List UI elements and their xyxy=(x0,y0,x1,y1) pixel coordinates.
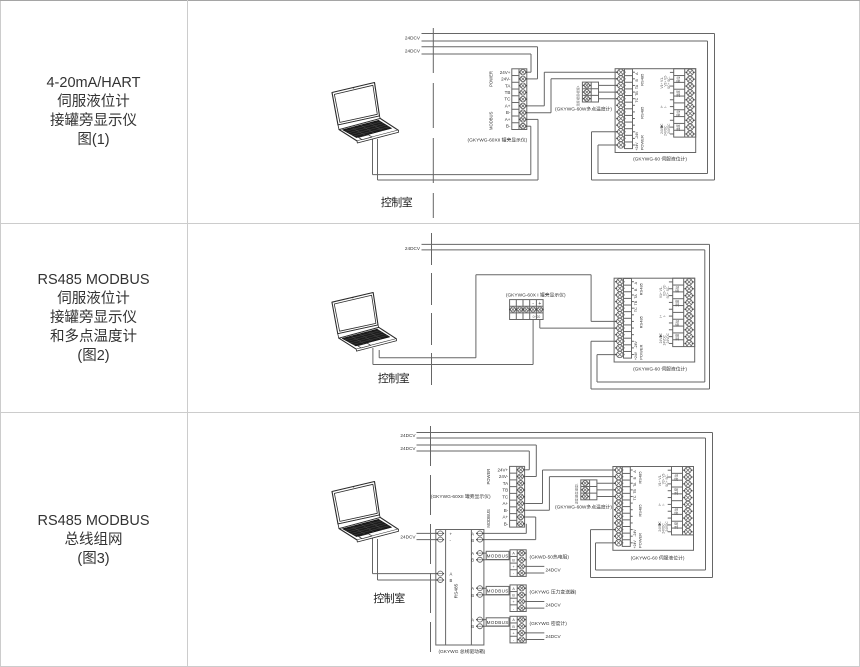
svg-text:+24V: +24V xyxy=(633,540,637,549)
svg-text:温度3: 温度3 xyxy=(575,98,580,106)
svg-text:TC: TC xyxy=(634,307,638,312)
svg-text:SC+ SC-: SC+ SC- xyxy=(665,474,669,487)
svg-text:(GKYWG-60W多点温度计): (GKYWG-60W多点温度计) xyxy=(555,106,612,113)
svg-text:B: B xyxy=(471,593,474,598)
svg-text:TA: TA xyxy=(503,481,508,486)
svg-text:SC+ SC-: SC+ SC- xyxy=(666,286,670,299)
svg-text:液位: 液位 xyxy=(675,319,680,327)
svg-text:温度: 温度 xyxy=(676,124,681,132)
svg-text:24VDC: 24VDC xyxy=(667,123,671,134)
svg-text:A: A xyxy=(471,586,474,591)
svg-text:A: A xyxy=(512,587,515,591)
svg-text:TC: TC xyxy=(504,97,511,102)
svg-text:TC: TC xyxy=(635,97,639,102)
svg-text:B-: B- xyxy=(506,110,511,115)
svg-text:24DCV: 24DCV xyxy=(400,535,416,540)
svg-text:A+: A+ xyxy=(503,501,509,506)
svg-text:液位: 液位 xyxy=(673,474,678,482)
svg-text:B-: B- xyxy=(504,508,509,513)
svg-text:0~20: 0~20 xyxy=(533,315,541,319)
svg-text:POWER: POWER xyxy=(488,71,493,87)
svg-text:A: A xyxy=(512,552,515,556)
svg-text:A: A xyxy=(450,572,453,577)
svg-text:MODBUS: MODBUS xyxy=(487,553,509,558)
svg-text:SC+ SC-: SC+ SC- xyxy=(667,76,671,89)
svg-text:24DCV: 24DCV xyxy=(400,433,416,438)
svg-text:A: A xyxy=(512,618,515,622)
svg-text:温度1: 温度1 xyxy=(573,483,578,491)
svg-text:温度: 温度 xyxy=(673,522,678,530)
svg-text:液位: 液位 xyxy=(675,285,680,293)
svg-text:温度3: 温度3 xyxy=(573,496,578,504)
svg-text:-: - xyxy=(513,572,515,576)
svg-text:温度: 温度 xyxy=(675,333,680,341)
svg-text:B: B xyxy=(512,625,515,629)
svg-text:TB: TB xyxy=(502,488,508,493)
svg-text:POWER: POWER xyxy=(637,533,642,548)
svg-text:24DCV: 24DCV xyxy=(405,36,421,41)
svg-text:I-: I- xyxy=(664,106,668,108)
svg-text:A: A xyxy=(633,470,637,473)
svg-text:B: B xyxy=(471,624,474,629)
svg-text:(GKYWG-60X I 罐旁显示仪): (GKYWG-60X I 罐旁显示仪) xyxy=(506,291,566,298)
svg-text:+: + xyxy=(513,632,515,636)
svg-text:控制室: 控制室 xyxy=(381,195,413,209)
svg-text:24DCV: 24DCV xyxy=(405,48,421,53)
svg-text:24VDC: 24VDC xyxy=(665,521,669,532)
svg-text:TC: TC xyxy=(502,494,509,499)
svg-text:B-: B- xyxy=(506,124,511,129)
svg-text:A: A xyxy=(471,551,474,556)
svg-text:A+: A+ xyxy=(503,515,509,520)
svg-text:RS485: RS485 xyxy=(639,282,644,295)
svg-text:B: B xyxy=(450,578,453,583)
svg-text:(GKYWG-60 伺服液位计): (GKYWG-60 伺服液位计) xyxy=(631,555,685,562)
svg-text:(GKYWG-60 伺服液位计): (GKYWG-60 伺服液位计) xyxy=(633,366,687,373)
svg-text:TC: TC xyxy=(633,495,637,500)
svg-text:I-: I- xyxy=(663,315,667,317)
svg-text:POWER: POWER xyxy=(639,345,644,360)
svg-text:B-: B- xyxy=(504,521,509,526)
svg-text:(GKYWG-60XII 罐旁显示仪): (GKYWG-60XII 罐旁显示仪) xyxy=(468,137,528,144)
svg-text:+: + xyxy=(513,565,515,569)
svg-text:B: B xyxy=(633,476,637,479)
svg-text:+: + xyxy=(450,531,453,536)
svg-text:B: B xyxy=(471,558,474,563)
svg-text:控制室: 控制室 xyxy=(378,371,410,385)
svg-text:B: B xyxy=(512,593,515,597)
svg-text:温度1: 温度1 xyxy=(575,85,580,93)
svg-text:RS485: RS485 xyxy=(637,471,642,484)
svg-text:24DCV: 24DCV xyxy=(546,603,562,608)
svg-text:TA: TA xyxy=(634,294,638,299)
svg-text:液位: 液位 xyxy=(676,76,681,84)
svg-text:I-: I- xyxy=(661,504,665,506)
svg-text:24V-: 24V- xyxy=(499,474,509,479)
svg-text:控制室: 控制室 xyxy=(373,591,405,605)
svg-text:(GKYWG 总线驱动箱): (GKYWG 总线驱动箱) xyxy=(438,648,485,655)
svg-text:+24V: +24V xyxy=(634,351,638,360)
svg-text:24DCV: 24DCV xyxy=(546,568,562,573)
svg-text:温度: 温度 xyxy=(676,90,681,98)
svg-text:-24V: -24V xyxy=(635,131,639,139)
svg-text:A: A xyxy=(471,531,474,536)
svg-text:24V+: 24V+ xyxy=(498,467,509,472)
svg-text:B: B xyxy=(471,538,474,543)
svg-text:MODBUS: MODBUS xyxy=(487,620,509,625)
svg-text:24V-: 24V- xyxy=(501,77,511,82)
svg-text:A: A xyxy=(634,281,638,284)
svg-text:温度: 温度 xyxy=(675,299,680,307)
svg-text:RS485: RS485 xyxy=(640,73,645,86)
svg-text:MODBUS: MODBUS xyxy=(487,588,509,593)
svg-text:+: + xyxy=(538,301,541,307)
svg-text:液位: 液位 xyxy=(673,508,678,516)
svg-text:24DCV: 24DCV xyxy=(400,446,416,451)
svg-text:A+: A+ xyxy=(505,103,511,108)
svg-text:-: - xyxy=(450,538,452,543)
svg-text:24DCV: 24DCV xyxy=(546,634,562,639)
svg-text:B: B xyxy=(635,79,639,82)
svg-text:+: + xyxy=(513,600,515,604)
svg-text:MODBUS: MODBUS xyxy=(486,509,491,528)
svg-text:24DCV: 24DCV xyxy=(405,246,421,251)
svg-text:温度2: 温度2 xyxy=(575,92,580,100)
svg-text:TA: TA xyxy=(633,482,637,487)
svg-text:+24V: +24V xyxy=(635,142,639,151)
svg-text:(GKYWG-60XII 罐旁显示仪): (GKYWG-60XII 罐旁显示仪) xyxy=(431,493,491,500)
svg-text:TB: TB xyxy=(634,300,638,305)
svg-text:-: - xyxy=(513,638,515,642)
svg-text:A: A xyxy=(635,72,639,75)
svg-text:TA: TA xyxy=(505,83,510,88)
svg-text:24V+: 24V+ xyxy=(500,70,511,75)
svg-text:-: - xyxy=(513,607,515,611)
svg-text:A+: A+ xyxy=(505,117,511,122)
svg-text:MODBUS: MODBUS xyxy=(488,111,493,130)
svg-text:温度: 温度 xyxy=(673,488,678,496)
svg-text:-24V: -24V xyxy=(633,529,637,537)
svg-text:液位: 液位 xyxy=(676,110,681,118)
svg-text:TB: TB xyxy=(633,488,637,493)
svg-text:(GKYWG 压力变送器): (GKYWG 压力变送器) xyxy=(530,589,577,596)
svg-text:RS485: RS485 xyxy=(637,504,642,517)
svg-text:TB: TB xyxy=(635,91,639,96)
svg-text:24VDC: 24VDC xyxy=(666,332,670,343)
svg-text:(GKYWG-60 伺服液位计): (GKYWG-60 伺服液位计) xyxy=(633,156,687,163)
svg-text:温度2: 温度2 xyxy=(573,490,578,498)
svg-text:TA: TA xyxy=(635,84,639,89)
svg-text:TB: TB xyxy=(505,90,511,95)
svg-text:(GKYWG-60W多点温度计): (GKYWG-60W多点温度计) xyxy=(555,503,612,510)
svg-text:-24V: -24V xyxy=(634,340,638,348)
svg-text:A: A xyxy=(471,618,474,623)
svg-text:POWER: POWER xyxy=(640,135,645,150)
svg-text:B: B xyxy=(512,558,515,562)
svg-text:B: B xyxy=(634,288,638,291)
svg-text:(GKWD-50热电阻): (GKWD-50热电阻) xyxy=(530,553,570,560)
svg-text:RS485: RS485 xyxy=(454,583,460,598)
svg-text:RS485: RS485 xyxy=(640,106,645,119)
svg-text:POWER: POWER xyxy=(486,469,491,485)
svg-text:RS485: RS485 xyxy=(639,315,644,328)
svg-text:(GKYWG 密度计): (GKYWG 密度计) xyxy=(530,620,568,627)
